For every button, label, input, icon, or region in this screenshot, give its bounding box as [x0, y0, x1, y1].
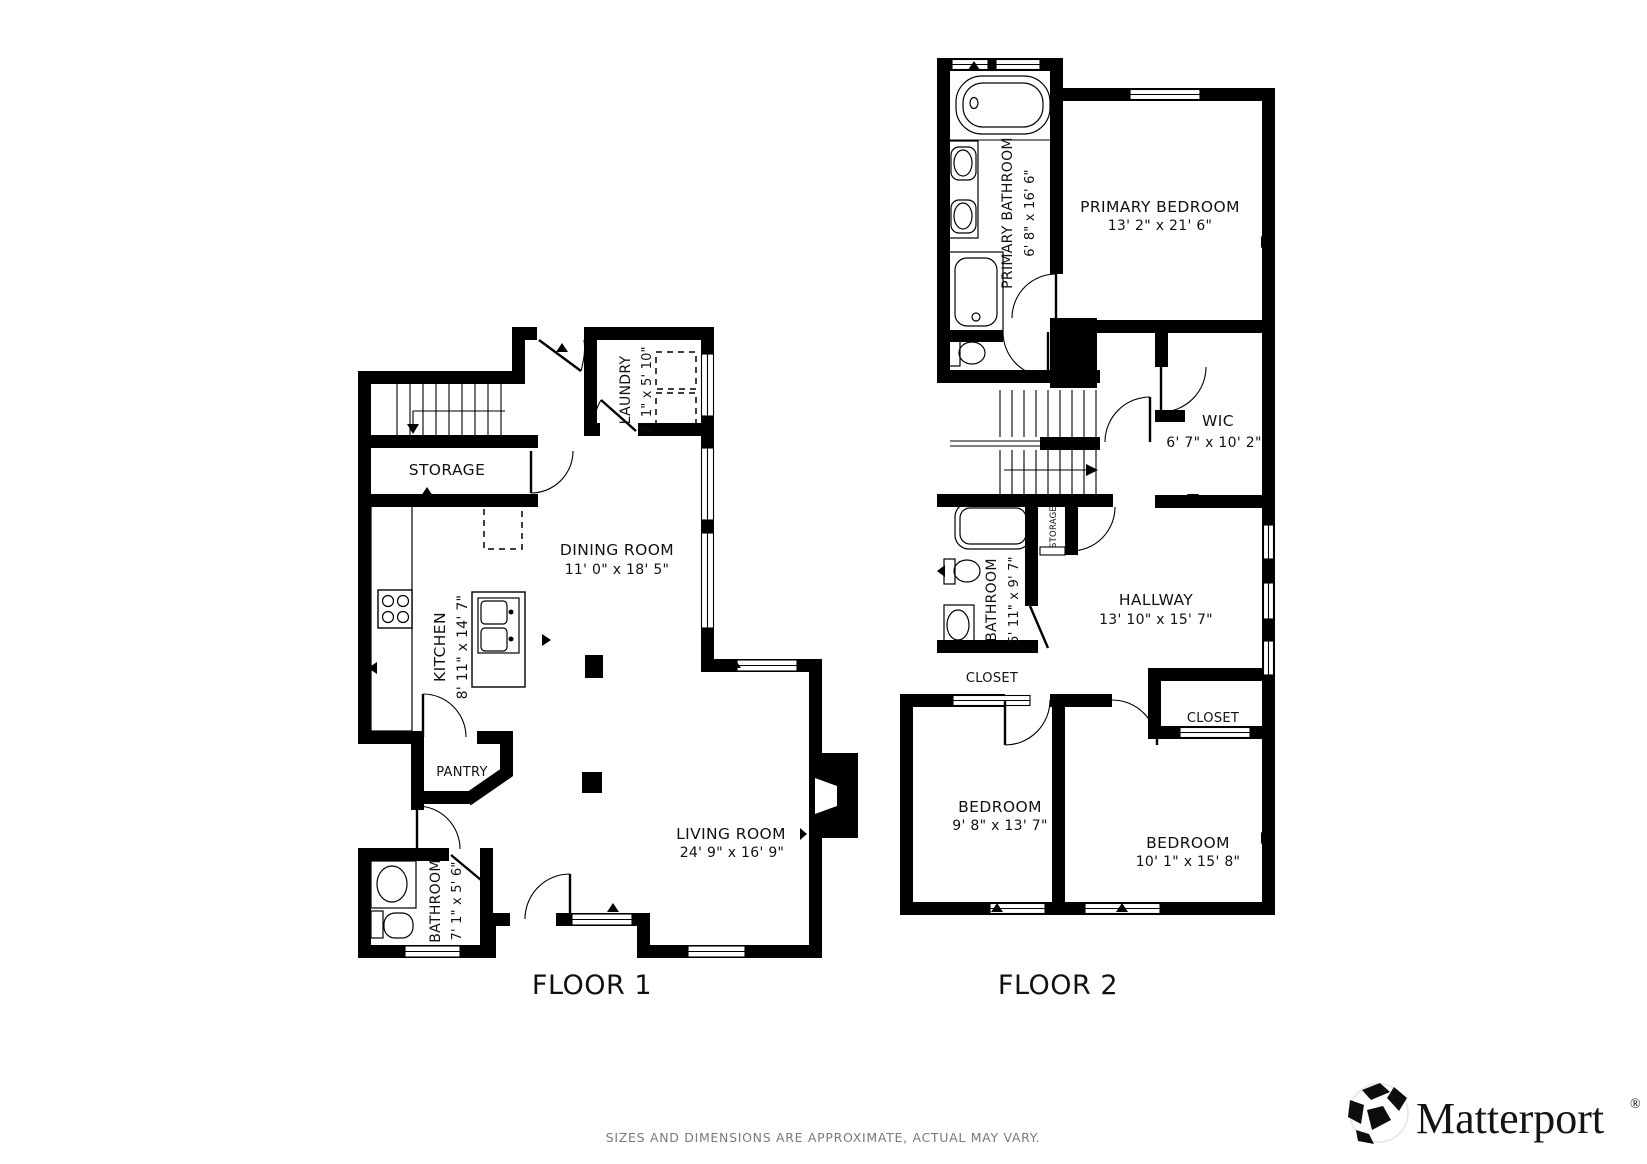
- room-label-living: LIVING ROOM: [676, 825, 786, 843]
- room-dims-bedroom-right: 10' 1" x 15' 8": [1136, 854, 1241, 870]
- shower-icon: [949, 252, 1003, 332]
- storage-door: [531, 451, 573, 493]
- room-label-hallway: HALLWAY: [1119, 591, 1193, 609]
- room-dims-primary-bedroom: 13' 2" x 21' 6": [1108, 218, 1213, 234]
- pedestal-sink: [944, 605, 974, 646]
- stove-icon: [378, 590, 412, 628]
- double-vanity: [948, 141, 978, 238]
- room-label-laundry: LAUNDRY: [618, 356, 634, 425]
- laundry-appliances: [656, 352, 696, 430]
- bedroom-left-door: [1005, 700, 1050, 745]
- window: [1264, 583, 1274, 619]
- dashed-appliance: [484, 505, 522, 549]
- room-label-bathroom2: BATHROOM: [984, 558, 1000, 641]
- hallway-door: [1105, 397, 1150, 442]
- toilet-icon: [944, 559, 980, 584]
- floor1-title: FLOOR 1: [532, 970, 652, 1001]
- window: [702, 354, 714, 416]
- vanity: [371, 861, 416, 908]
- window: [702, 533, 714, 628]
- closet-slider: [1180, 728, 1250, 738]
- room-label-closet-left: CLOSET: [966, 671, 1018, 686]
- room-dims-laundry: 7' 1" x 5' 10": [640, 346, 655, 433]
- bathroom-fixtures: [371, 861, 416, 938]
- room-dims-dining: 11' 0" x 18' 5": [565, 562, 670, 578]
- sink-icon: [947, 610, 969, 640]
- floor2-title: FLOOR 2: [998, 970, 1118, 1001]
- room-dims-wic: 6' 7" x 10' 2": [1166, 435, 1261, 451]
- matterport-logo: Matterport ®: [1348, 1083, 1641, 1144]
- window: [702, 448, 714, 520]
- room-label-closet-right: CLOSET: [1187, 711, 1239, 726]
- hall-door: [417, 806, 460, 849]
- registered-mark: ®: [1630, 1097, 1641, 1112]
- room-dims-bathroom2: 5' 11" x 9' 7": [1007, 556, 1022, 643]
- floor2-dim-arrows: [937, 61, 1270, 912]
- window: [1264, 525, 1274, 559]
- room-label-dining: DINING ROOM: [560, 541, 674, 559]
- room-label-bedroom-left: BEDROOM: [958, 798, 1042, 816]
- room-label-storage: STORAGE: [409, 461, 486, 479]
- window: [996, 60, 1040, 70]
- room-label-pantry: PANTRY: [436, 765, 488, 780]
- window: [1130, 90, 1200, 100]
- floor1-doors: [417, 340, 636, 919]
- front-door: [525, 874, 570, 919]
- room-label-wic: WIC: [1202, 412, 1234, 430]
- room-dims-primary-bathroom: 6' 8" x 16' 6": [1023, 169, 1038, 256]
- window: [737, 660, 797, 671]
- room-dims-living: 24' 9" x 16' 9": [680, 845, 785, 861]
- matterport-pinwheel-icon: [1348, 1083, 1408, 1144]
- stairs-direction-arrow: [407, 424, 419, 434]
- window: [1264, 641, 1274, 675]
- sink-icon: [377, 866, 407, 902]
- sink-icon: [954, 203, 972, 229]
- room-label-storage2: STORAGE: [1049, 506, 1059, 548]
- closet-slider: [953, 696, 1030, 706]
- room-label-primary-bedroom: PRIMARY BEDROOM: [1080, 198, 1240, 216]
- room-label-bedroom-right: BEDROOM: [1146, 834, 1230, 852]
- window: [405, 946, 460, 957]
- sink-icon: [954, 150, 972, 176]
- room-dims-hallway: 13' 10" x 15' 7": [1099, 612, 1213, 628]
- kitchen-island: [472, 592, 525, 687]
- toilet-tank: [371, 911, 383, 938]
- toilet-icon: [949, 341, 985, 366]
- post: [585, 655, 603, 678]
- room-label-primary-bathroom: PRIMARY BATHROOM: [1000, 137, 1016, 289]
- bathtub-icon: [956, 76, 1050, 134]
- floorplan-canvas: STORAGE LAUNDRY 7' 1" x 5' 10" DINING RO…: [0, 0, 1647, 1164]
- floor1-stairs: [397, 384, 505, 435]
- toilet-icon: [384, 913, 413, 938]
- room-dims-bathroom1: 7' 1" x 5' 6": [450, 861, 465, 940]
- room-label-bathroom1: BATHROOM: [428, 859, 444, 942]
- window: [688, 946, 745, 957]
- primary-bathroom-door: [1012, 274, 1056, 318]
- floorplan-page: STORAGE LAUNDRY 7' 1" x 5' 10" DINING RO…: [0, 0, 1647, 1164]
- matterport-wordmark: Matterport: [1416, 1094, 1604, 1143]
- room-dims-kitchen: 8' 11" x 14' 7": [455, 595, 471, 700]
- post: [582, 772, 602, 793]
- window: [572, 914, 632, 925]
- kitchen-door: [423, 694, 466, 737]
- disclaimer-text: SIZES AND DIMENSIONS ARE APPROXIMATE, AC…: [606, 1130, 1040, 1145]
- room-dims-bedroom-left: 9' 8" x 13' 7": [952, 818, 1047, 834]
- floor2-plan: PRIMARY BATHROOM 6' 8" x 16' 6" PRIMARY …: [900, 58, 1275, 1001]
- floor1-plan: STORAGE LAUNDRY 7' 1" x 5' 10" DINING RO…: [358, 327, 858, 1001]
- room-label-kitchen: KITCHEN: [431, 612, 449, 682]
- wic-door: [1161, 367, 1206, 412]
- bathtub-icon: [955, 503, 1031, 549]
- floor2-walls: [900, 58, 1275, 915]
